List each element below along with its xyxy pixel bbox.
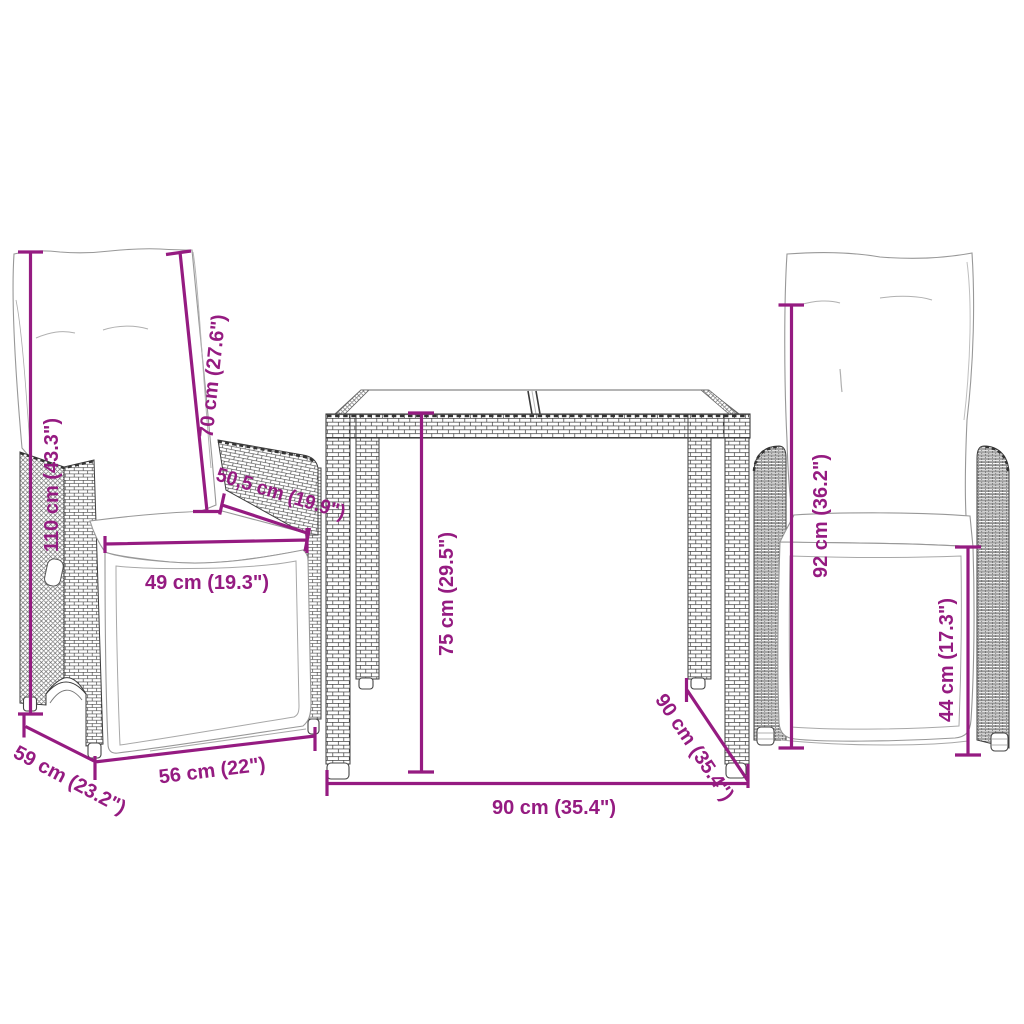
svg-text:49 cm (19.3"): 49 cm (19.3") [145, 572, 269, 594]
svg-text:90 cm (35.4"): 90 cm (35.4") [492, 797, 616, 819]
svg-text:75 cm (29.5"): 75 cm (29.5") [436, 532, 458, 656]
svg-text:110 cm (43.3"): 110 cm (43.3") [41, 418, 63, 552]
svg-text:59 cm (23.2"): 59 cm (23.2") [10, 742, 130, 820]
svg-text:44 cm (17.3"): 44 cm (17.3") [936, 598, 958, 722]
svg-text:56 cm (22"): 56 cm (22") [158, 754, 267, 789]
svg-text:92 cm (36.2"): 92 cm (36.2") [810, 454, 832, 578]
